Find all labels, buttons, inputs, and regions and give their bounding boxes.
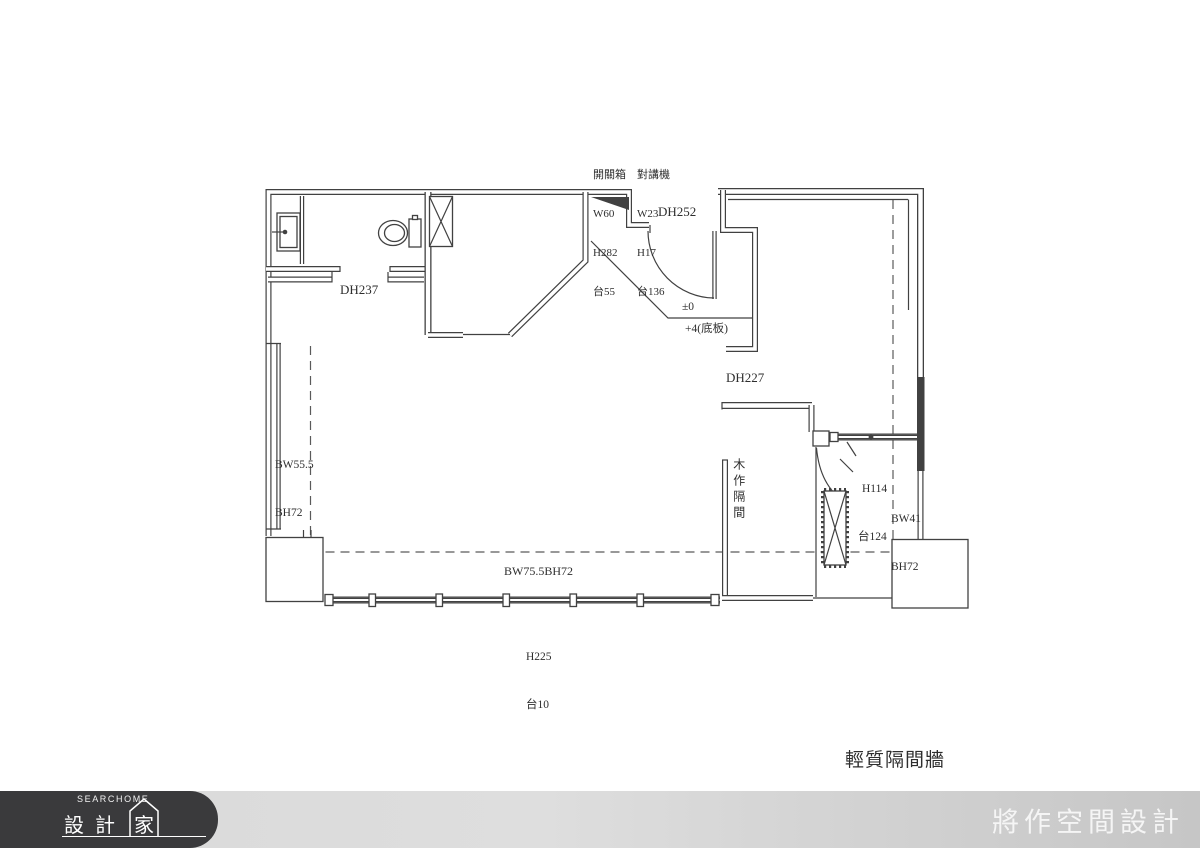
- footer-bar: SEARCHOME 設計家 將作空間設計: [0, 791, 1200, 848]
- brand-pill: SEARCHOME 設計家: [0, 791, 218, 848]
- window-bottom-sub-label: H225 台10: [526, 617, 552, 745]
- window-bottom-band: [325, 594, 720, 607]
- level-zero-label: ±0: [682, 301, 694, 314]
- equipment-x-box: [823, 490, 848, 567]
- toilet-fixture: [379, 216, 422, 248]
- floor-plan-drawing: [0, 0, 1200, 848]
- wood-partition-label: 木作隔間: [731, 458, 745, 522]
- floor-plan-page: 開關箱 W60 H282 台55 對講機 W23 H17 台136 DH252 …: [0, 0, 1200, 848]
- window-bottom-label: BW75.5BH72: [504, 565, 573, 579]
- door-height-inner: DH227: [726, 371, 764, 386]
- searchome-logo: SEARCHOME 設計家: [62, 794, 208, 840]
- brand-char-2: 計: [95, 809, 117, 838]
- logo-underline: [62, 836, 206, 837]
- door-height-bathroom: DH237: [340, 283, 378, 298]
- brand-char-3-house: 家: [128, 805, 162, 840]
- level-raised-label: +4(底板): [685, 323, 728, 336]
- door-height-entry: DH252: [658, 205, 696, 220]
- door-leaf-block: [813, 431, 829, 446]
- sink-fixture: [272, 213, 300, 251]
- window-right-opening-label: H114 台124: [858, 449, 887, 577]
- house-outline-icon: [128, 795, 160, 837]
- pipe-shaft-x-box: [430, 197, 453, 247]
- window-right-label: BW41 BH72: [891, 479, 921, 607]
- brand-char-1: 設: [64, 809, 86, 838]
- design-company-name: 將作空間設計: [992, 800, 1184, 839]
- switch-box-label: 開關箱 W60 H282 台55: [593, 143, 626, 325]
- intercom-label: 對講機 W23 H17 台136: [637, 143, 670, 325]
- brand-name-cjk: 設計家: [64, 805, 162, 840]
- window-left-label: BW55.5 BH72: [275, 425, 314, 553]
